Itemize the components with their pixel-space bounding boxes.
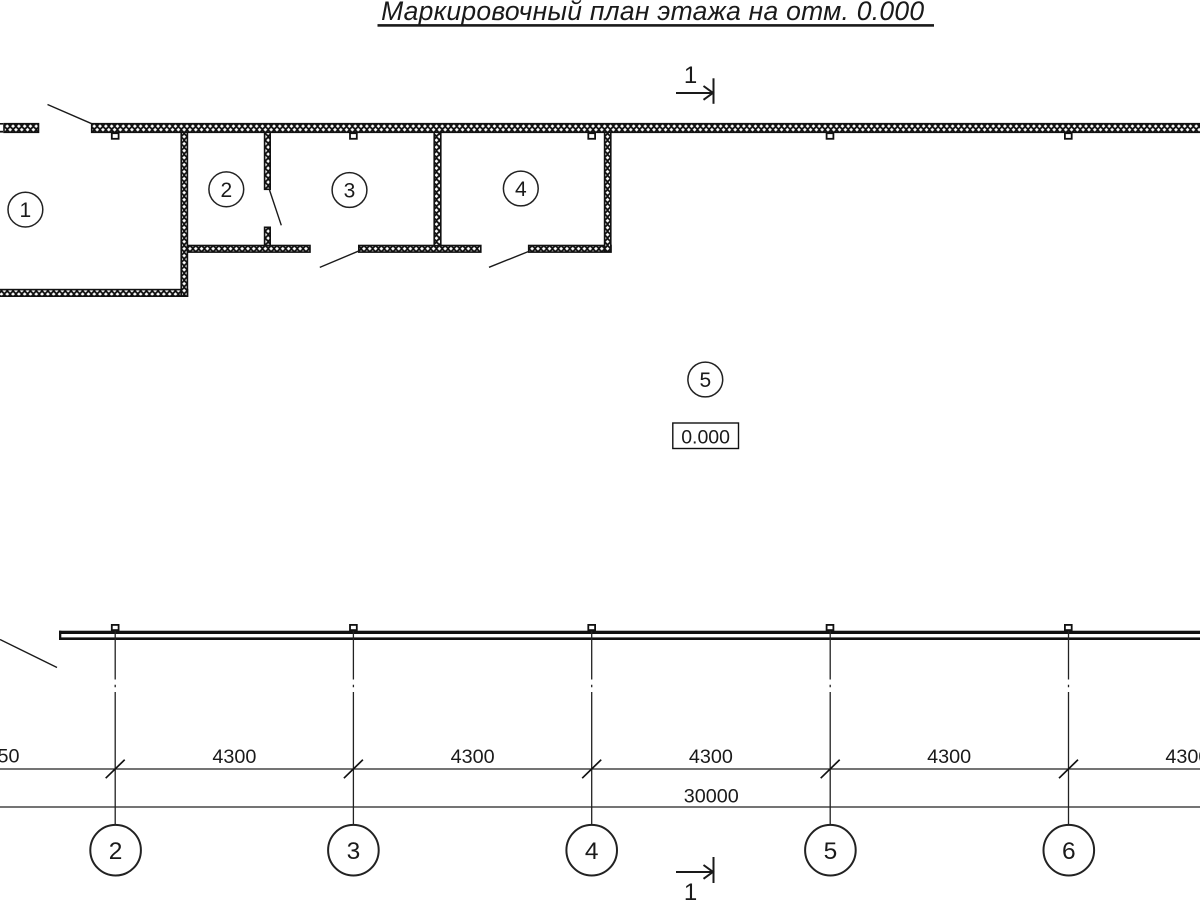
- svg-text:2: 2: [109, 838, 123, 865]
- svg-text:2: 2: [220, 179, 232, 202]
- svg-text:3: 3: [347, 838, 361, 865]
- svg-text:6: 6: [1062, 838, 1076, 865]
- svg-text:Маркировочный план этажа на от: Маркировочный план этажа на отм. 0.000: [381, 0, 924, 26]
- svg-text:50: 50: [0, 746, 20, 768]
- svg-text:4: 4: [585, 838, 599, 865]
- svg-text:5: 5: [699, 369, 711, 392]
- svg-text:0.000: 0.000: [681, 427, 730, 449]
- svg-text:1: 1: [684, 879, 697, 900]
- svg-text:1: 1: [684, 62, 697, 89]
- svg-text:4300: 4300: [927, 746, 971, 768]
- svg-text:4300: 4300: [451, 746, 495, 768]
- svg-text:5: 5: [824, 838, 838, 865]
- svg-text:4300: 4300: [212, 746, 256, 768]
- svg-text:4: 4: [515, 178, 527, 201]
- svg-text:1: 1: [20, 199, 32, 222]
- svg-text:4300: 4300: [689, 746, 733, 768]
- svg-text:30000: 30000: [684, 785, 739, 807]
- svg-text:3: 3: [344, 180, 356, 203]
- svg-text:4300: 4300: [1165, 746, 1200, 768]
